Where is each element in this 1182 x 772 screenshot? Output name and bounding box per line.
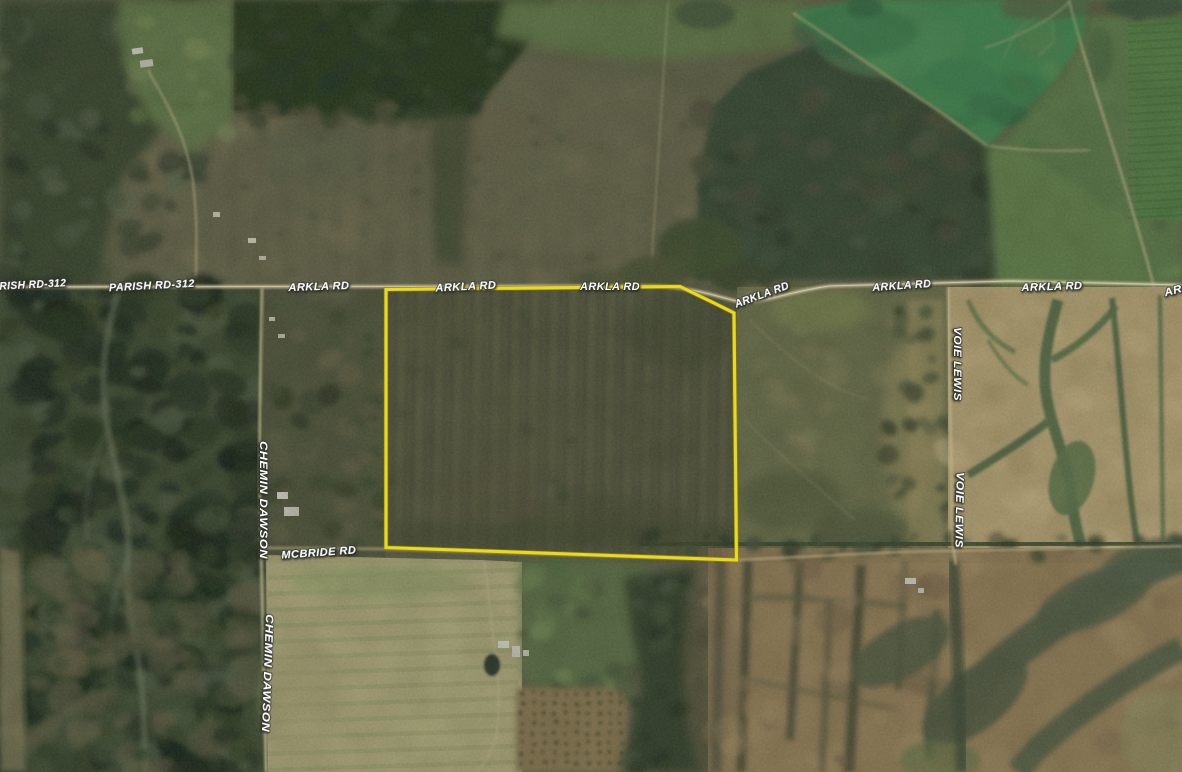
svg-text:VOIE LEWIS: VOIE LEWIS <box>952 472 965 548</box>
svg-text:ARKLA RD: ARKLA RD <box>1020 280 1082 294</box>
svg-text:ARKLA RD: ARKLA RD <box>579 281 640 293</box>
svg-text:VOIE LEWIS: VOIE LEWIS <box>951 327 963 401</box>
svg-text:CHEMIN DAWSON: CHEMIN DAWSON <box>257 441 269 560</box>
svg-text:ARKLA RD: ARKLA RD <box>287 280 349 294</box>
